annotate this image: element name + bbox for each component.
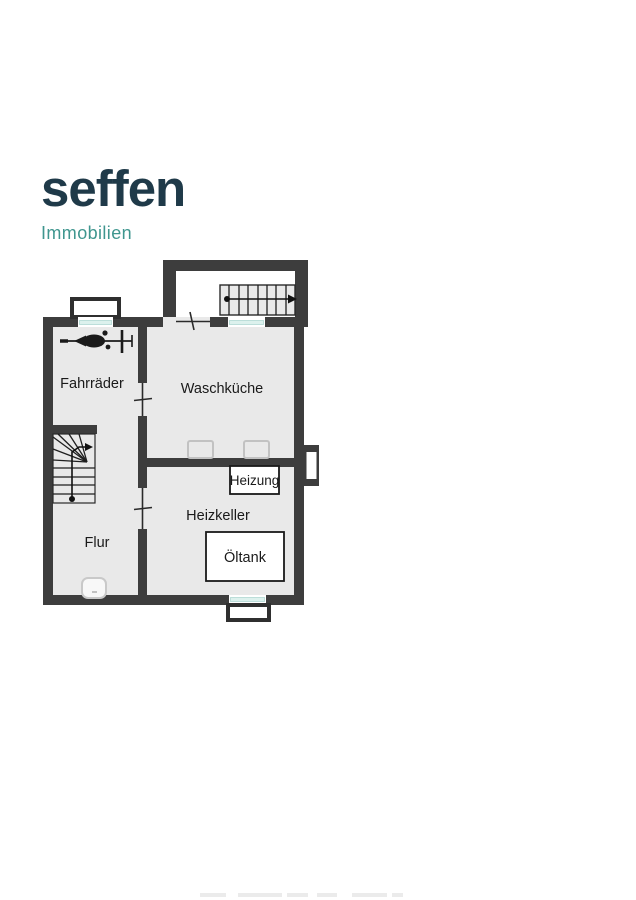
oeltank-box: Öltank (206, 532, 284, 581)
room-label-flur: Flur (85, 535, 110, 551)
light-well-top (72, 299, 119, 317)
room-label-waschkueche: Waschküche (181, 381, 263, 397)
cropped-footer-artifact (0, 893, 636, 898)
interior-stairs-icon (53, 434, 95, 503)
floor-plan-svg: Heizung Öltank Fahrräder Waschküche Heiz… (30, 250, 350, 640)
washing-machine (188, 441, 213, 458)
exterior-stairs-icon (220, 285, 297, 315)
floor-plan: Heizung Öltank Fahrräder Waschküche Heiz… (30, 250, 350, 640)
room-label-fahrraeder: Fahrräder (60, 376, 124, 392)
window-bottom (228, 595, 269, 620)
window-under-stairs (228, 317, 265, 327)
heizung-box: Heizung (230, 466, 280, 494)
heizung-label: Heizung (230, 473, 280, 488)
company-logo: seffen Immobilien (41, 163, 185, 244)
floor-drain-icon (82, 578, 106, 598)
page: seffen Immobilien (0, 0, 636, 900)
room-label-heizkeller: Heizkeller (186, 508, 250, 524)
window-right (304, 445, 319, 486)
logo-brand-text: seffen (41, 163, 185, 214)
washing-machine (244, 441, 269, 458)
logo-tagline-text: Immobilien (41, 223, 185, 244)
oeltank-label: Öltank (224, 548, 267, 566)
light-well-bottom (228, 605, 269, 620)
window-top-left (72, 299, 119, 327)
exterior-stair-enclosure (163, 260, 308, 327)
